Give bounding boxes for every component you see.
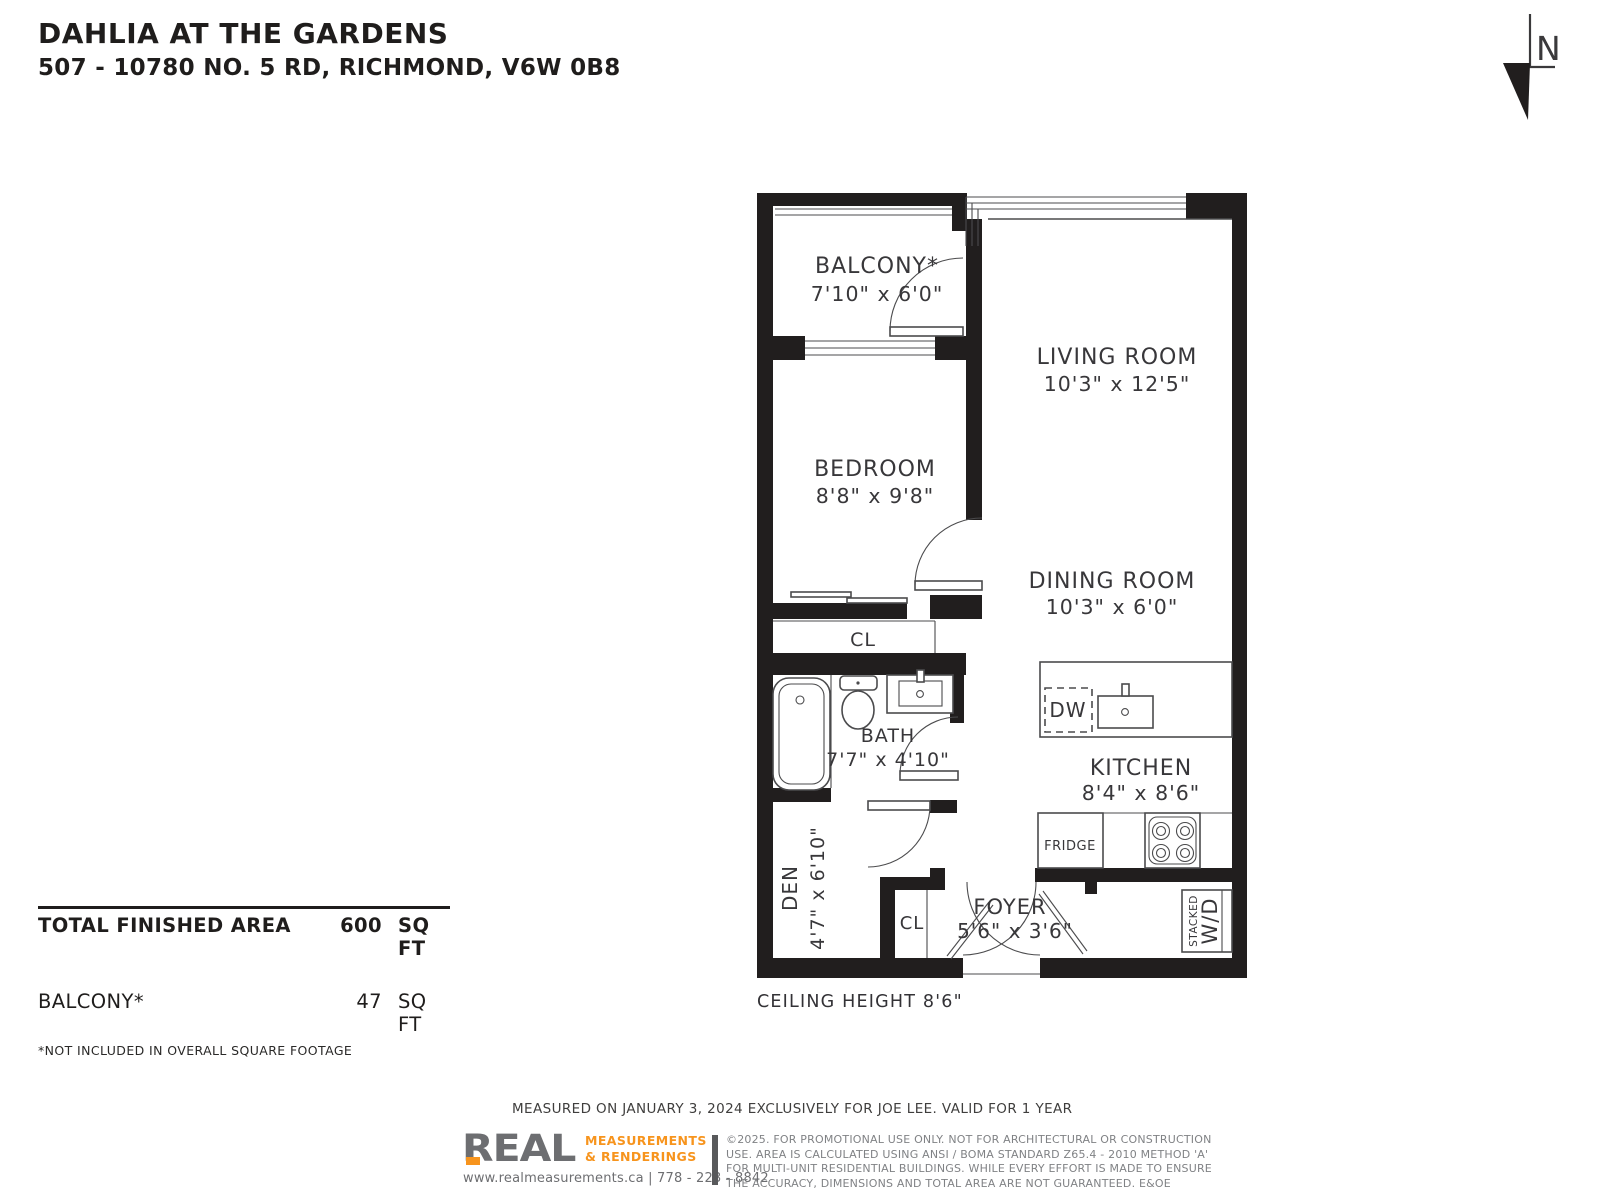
stove-icon	[1145, 813, 1200, 868]
north-arrow-icon: N	[1480, 8, 1580, 133]
floorplan-drawing: BALCONY* 7'10" x 6'0" LIVING ROOM 10'3" …	[735, 185, 1255, 1015]
bath-label: BATH	[861, 725, 915, 747]
balcony-area-row: BALCONY* 47 SQ FT	[38, 990, 450, 1036]
page-title: DAHLIA AT THE GARDENS	[38, 20, 621, 48]
kitchen-dims: 8'4" x 8'6"	[1082, 781, 1200, 805]
balcony-area-unit: SQ FT	[386, 990, 450, 1036]
bath-door-leaf	[900, 771, 958, 780]
bedroom-label: BEDROOM	[814, 457, 936, 482]
bath-dims: 7'7" x 4'10"	[826, 749, 950, 771]
balcony-door-leaf	[890, 327, 963, 336]
disclaimer-line-4: THE ACCURACY, DIMENSIONS AND TOTAL AREA …	[726, 1177, 1212, 1192]
bedroom-closet-label: CL	[850, 629, 876, 651]
balcony-dims: 7'10" x 6'0"	[811, 282, 944, 306]
washer-dryer-label: W/D	[1198, 897, 1222, 944]
bathtub-icon	[773, 678, 830, 790]
balcony-area-value: 47	[324, 990, 386, 1013]
logo-accent-square	[466, 1157, 480, 1165]
living-room-dims: 10'3" x 12'5"	[1044, 372, 1191, 396]
disclaimer-line-3: FOR MULTI-UNIT RESIDENTIAL BUILDINGS. WH…	[726, 1162, 1212, 1177]
dining-room-dims: 10'3" x 6'0"	[1046, 595, 1179, 619]
bedroom-dims: 8'8" x 9'8"	[816, 484, 934, 508]
dining-room-label: DINING ROOM	[1029, 569, 1196, 594]
foyer-label: FOYER	[973, 895, 1046, 919]
disclaimer-line-2: USE. AREA IS CALCULATED USING ANSI / BOM…	[726, 1148, 1212, 1163]
area-summary: TOTAL FINISHED AREA 600 SQ FT BALCONY* 4…	[38, 906, 450, 1058]
bedroom-door-leaf	[915, 581, 982, 590]
floorplan-page: DAHLIA AT THE GARDENS 507 - 10780 NO. 5 …	[0, 0, 1600, 1200]
foyer-dims: 5'6" x 3'6"	[957, 919, 1073, 943]
footer-divider	[712, 1135, 718, 1185]
kitchen-label: KITCHEN	[1090, 756, 1192, 781]
logo-tagline-1: MEASUREMENTS	[585, 1133, 707, 1149]
total-area-unit: SQ FT	[386, 914, 450, 960]
measured-statement: MEASURED ON JANUARY 3, 2024 EXCLUSIVELY …	[512, 1101, 1072, 1117]
logo-tagline: MEASUREMENTS & RENDERINGS	[585, 1133, 707, 1165]
summary-rule	[38, 906, 450, 909]
logo-tagline-2: & RENDERINGS	[585, 1149, 707, 1165]
total-area-value: 600	[324, 914, 386, 937]
fridge-label: FRIDGE	[1044, 839, 1096, 854]
logo-contact: www.realmeasurements.ca | 778 - 223 - 88…	[463, 1171, 769, 1186]
den-label: DEN	[778, 865, 802, 911]
den-door-leaf	[868, 801, 930, 810]
bath-sink-icon	[887, 670, 953, 713]
balcony-label: BALCONY*	[815, 254, 939, 279]
room-labels: BALCONY* 7'10" x 6'0" LIVING ROOM 10'3" …	[757, 254, 1222, 1012]
disclaimer: ©2025. FOR PROMOTIONAL USE ONLY. NOT FOR…	[726, 1133, 1212, 1191]
area-footnote: *NOT INCLUDED IN OVERALL SQUARE FOOTAGE	[38, 1043, 450, 1058]
dishwasher-label: DW	[1049, 698, 1086, 722]
total-area-label: TOTAL FINISHED AREA	[38, 914, 324, 937]
north-label: N	[1536, 29, 1561, 68]
total-area-row: TOTAL FINISHED AREA 600 SQ FT	[38, 914, 450, 960]
den-dims: 4'7" x 6'10"	[807, 826, 829, 950]
disclaimer-line-1: ©2025. FOR PROMOTIONAL USE ONLY. NOT FOR…	[726, 1133, 1212, 1148]
toilet-icon	[840, 676, 877, 729]
header: DAHLIA AT THE GARDENS 507 - 10780 NO. 5 …	[38, 20, 621, 80]
living-room-label: LIVING ROOM	[1037, 345, 1198, 370]
address-line: 507 - 10780 NO. 5 RD, RICHMOND, V6W 0B8	[38, 57, 621, 80]
foyer-closet-label: CL	[900, 913, 925, 934]
balcony-area-label: BALCONY*	[38, 990, 324, 1013]
ceiling-height-note: CEILING HEIGHT 8'6"	[757, 992, 963, 1012]
